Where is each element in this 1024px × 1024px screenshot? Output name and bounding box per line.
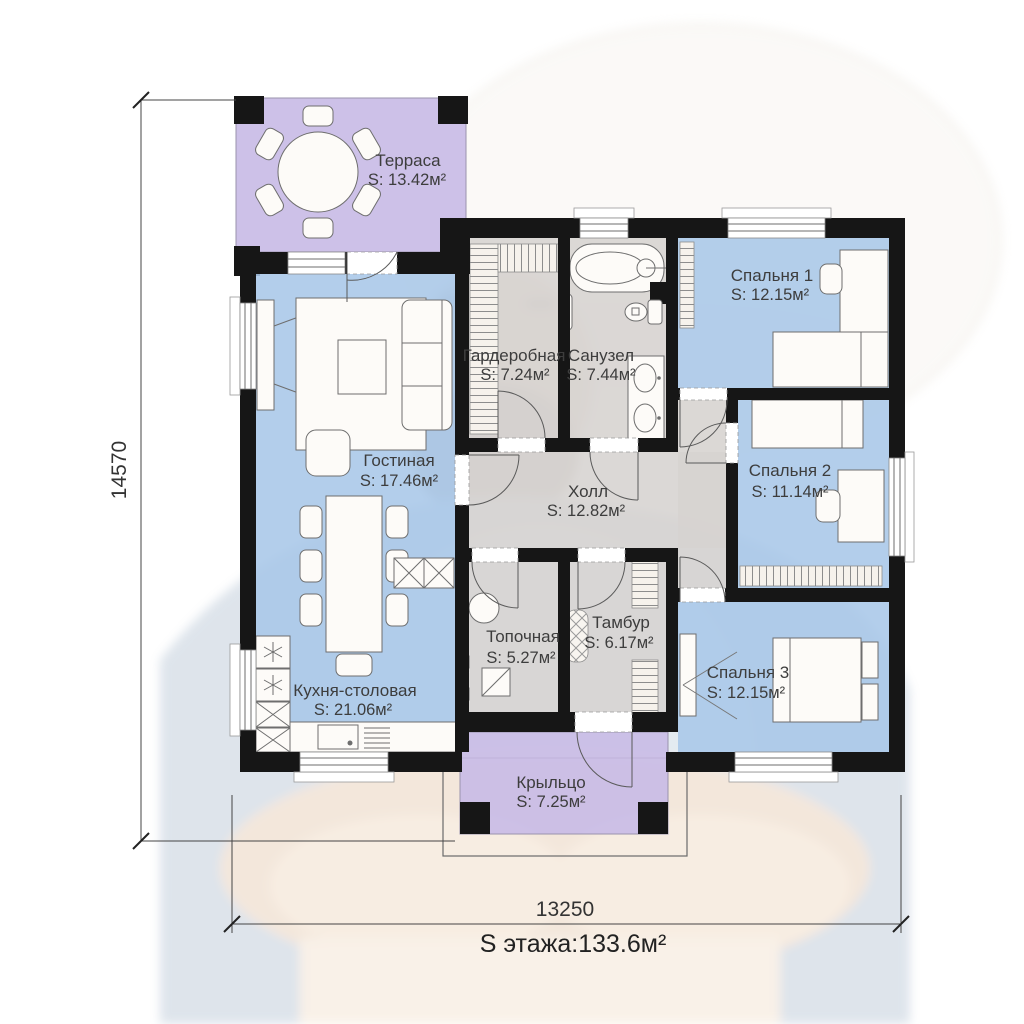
shelving (632, 660, 658, 714)
corridor-floor (678, 400, 726, 588)
dining-table (326, 496, 382, 652)
room-label-hall: Холл (568, 482, 608, 501)
window (288, 252, 345, 274)
room-label-bathroom: Санузел (568, 346, 634, 365)
room-area-wardrobe: S: 7.24м² (480, 366, 550, 384)
nightstand (862, 642, 878, 678)
dim-width-label: 13250 (536, 898, 594, 921)
sofa (402, 300, 452, 430)
room-area-living: S: 17.46м² (360, 472, 439, 490)
room-area-terrace: S: 13.42м² (368, 171, 447, 189)
room-area-bedroom1: S: 12.15м² (731, 286, 810, 304)
armchair (306, 430, 350, 476)
room-label-kitchen: Кухня-столовая (293, 681, 416, 700)
window (294, 752, 394, 782)
window (889, 452, 914, 562)
coffee-table (338, 340, 386, 394)
tv-unit (257, 300, 274, 410)
wardrobe-strip (740, 566, 882, 586)
bed-single (752, 400, 863, 448)
room-label-wardrobe: Гардеробная (463, 346, 566, 365)
room-label-vestibule: Тамбур (592, 613, 650, 632)
room-label-bedroom1: Спальня 1 (731, 266, 814, 285)
nightstand (862, 684, 878, 720)
dim-height-label: 14570 (108, 441, 131, 499)
desk (838, 470, 884, 542)
room-area-bathroom: S: 7.44м² (566, 366, 636, 384)
window (574, 208, 634, 238)
room-label-living: Гостиная (363, 451, 434, 470)
room-label-bedroom3: Спальня 3 (707, 663, 790, 682)
shelving (632, 556, 658, 608)
room-area-vestibule: S: 6.17м² (584, 634, 654, 652)
bed-single (773, 332, 888, 387)
room-label-bedroom2: Спальня 2 (749, 461, 832, 480)
room-area-boiler: S: 5.27м² (486, 649, 556, 667)
wardrobe-cabinet (680, 634, 696, 716)
room-area-kitchen: S: 21.06м² (314, 701, 393, 719)
floor-area-total: S этажа:133.6м² (480, 930, 667, 958)
floor-plan-svg: 14570 13250 S этажа:133.6м² Терраса S: 1… (0, 0, 1024, 1024)
window (729, 752, 838, 782)
room-label-boiler: Топочная (486, 627, 560, 646)
room-area-porch: S: 7.25м² (516, 793, 586, 811)
window (230, 644, 256, 736)
room-area-bedroom2: S: 11.14м² (751, 483, 829, 501)
kitchen-counter-left (256, 636, 290, 752)
room-area-hall: S: 12.82м² (547, 502, 626, 520)
boiler (469, 593, 499, 623)
kitchen-cabinets-right (394, 558, 454, 588)
kitchen-sink (318, 725, 358, 749)
floor-plan-page: 14570 13250 S этажа:133.6м² Терраса S: 1… (0, 0, 1024, 1024)
window (230, 297, 256, 395)
room-label-terrace: Терраса (375, 151, 441, 170)
room-area-bedroom3: S: 12.15м² (707, 684, 786, 702)
room-label-porch: Крыльцо (516, 773, 585, 792)
kitchen-counter-bottom (290, 722, 456, 752)
window (722, 208, 831, 238)
desk-chair (820, 264, 842, 294)
